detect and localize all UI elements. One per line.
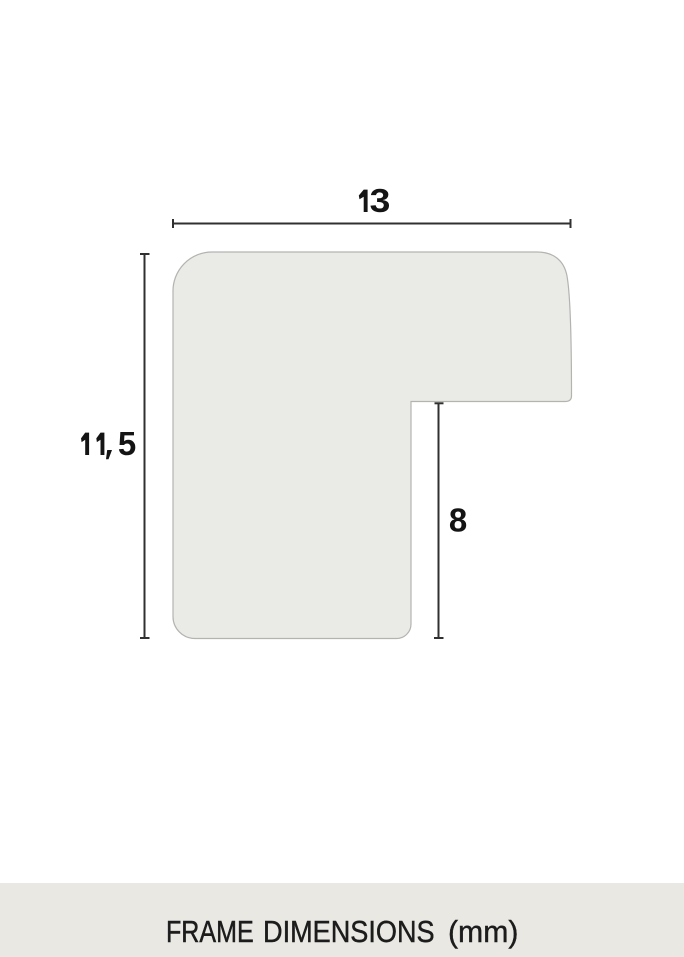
svg-text:5: 5 bbox=[118, 425, 136, 462]
svg-text:3: 3 bbox=[370, 183, 391, 220]
svg-text:8: 8 bbox=[449, 502, 467, 539]
